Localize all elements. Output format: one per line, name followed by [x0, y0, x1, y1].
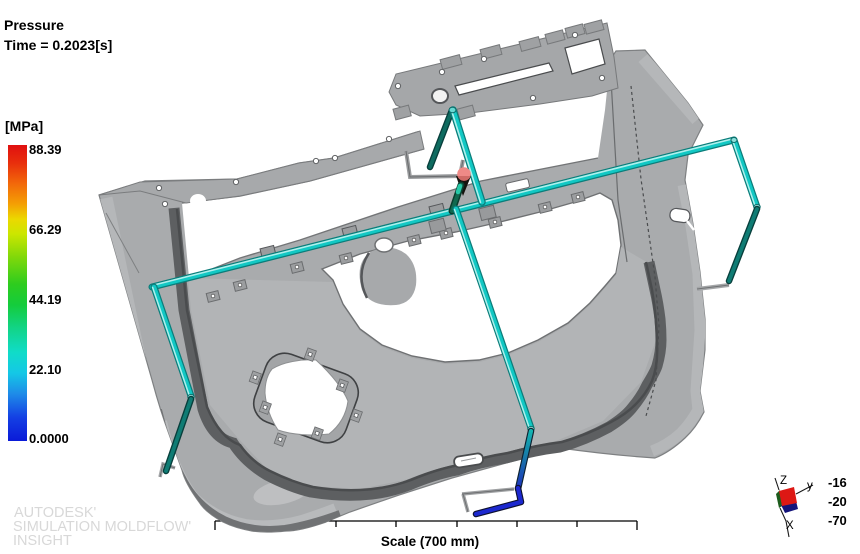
svg-text:22.10: 22.10 — [29, 362, 62, 377]
svg-text:y: y — [807, 480, 813, 492]
svg-text:X: X — [786, 520, 794, 532]
svg-text:-16: -16 — [828, 475, 847, 490]
svg-text:88.39: 88.39 — [29, 142, 62, 157]
svg-text:66.29: 66.29 — [29, 222, 62, 237]
svg-text:0.0000: 0.0000 — [29, 431, 69, 446]
svg-text:[MPa]: [MPa] — [5, 118, 43, 134]
svg-text:-70: -70 — [828, 513, 847, 528]
svg-text:44.19: 44.19 — [29, 292, 62, 307]
svg-text:-20: -20 — [828, 494, 847, 509]
svg-text:Time = 0.2023[s]: Time = 0.2023[s] — [4, 37, 112, 53]
svg-text:Scale (700 mm): Scale (700 mm) — [381, 534, 479, 549]
svg-text:Pressure: Pressure — [4, 17, 64, 33]
svg-text:INSIGHT: INSIGHT — [13, 533, 72, 549]
svg-text:Z: Z — [780, 475, 787, 487]
